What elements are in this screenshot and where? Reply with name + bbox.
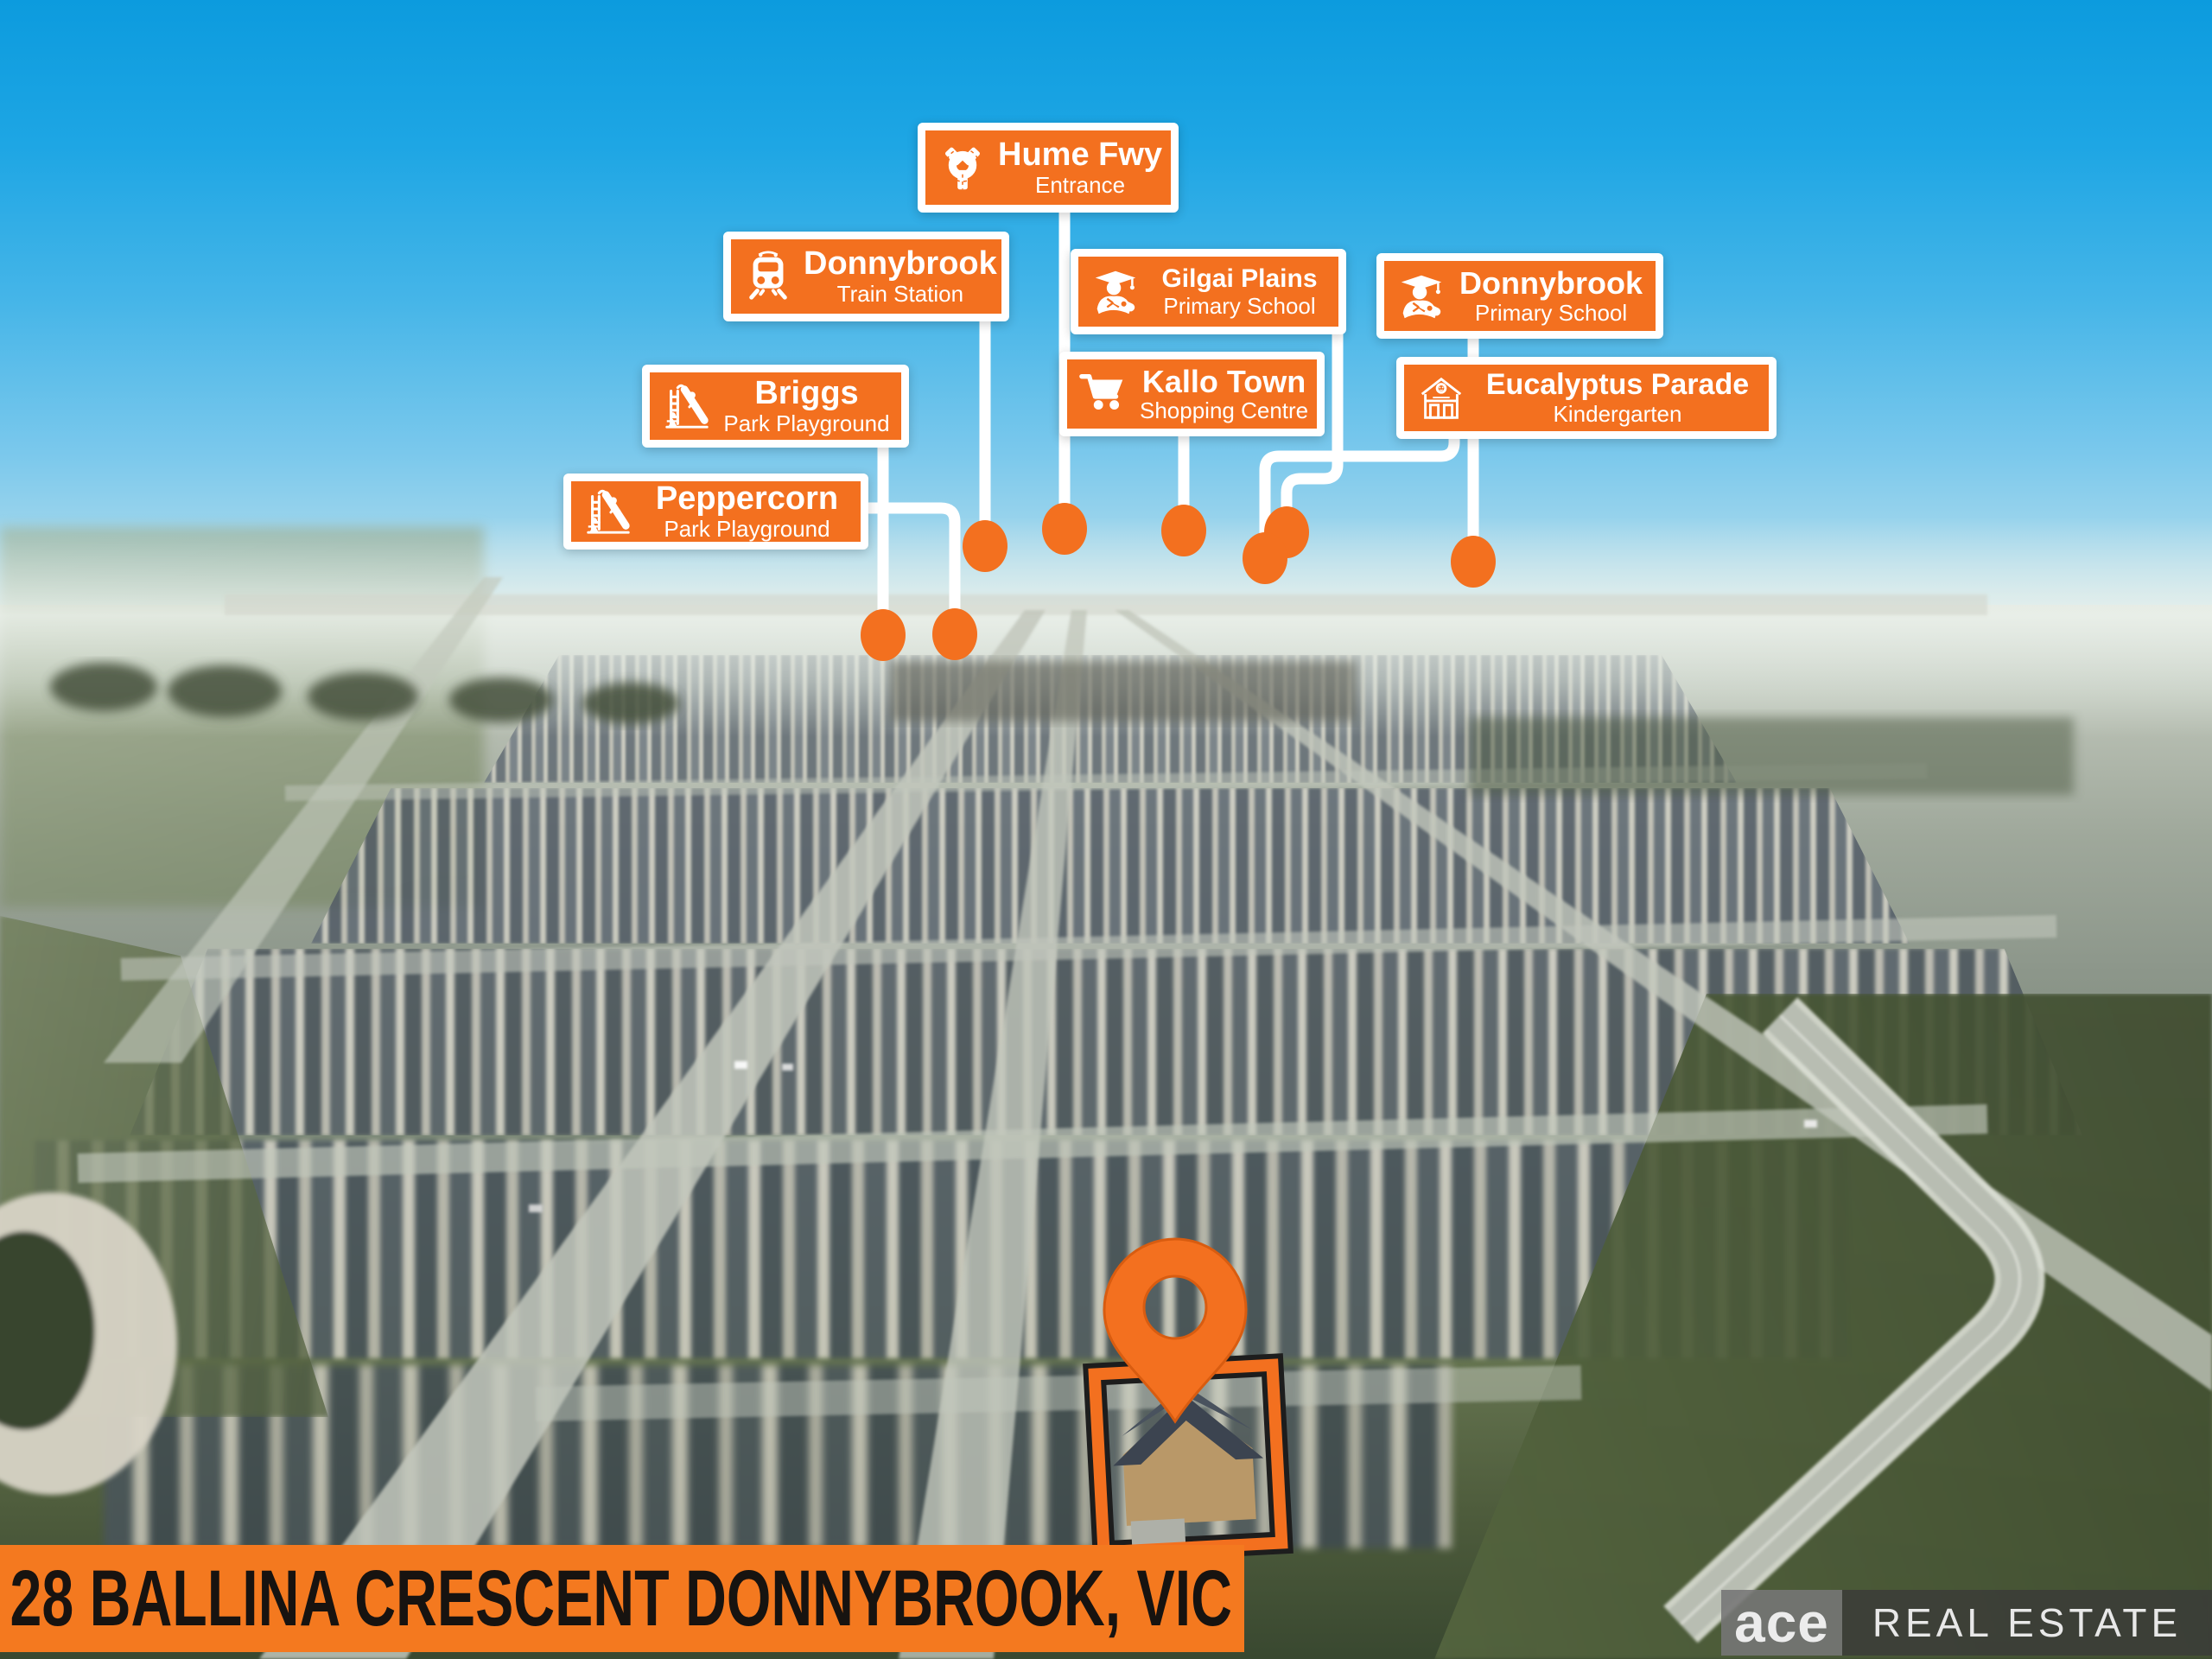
playground-slide-icon xyxy=(660,379,714,433)
brand-watermark: ace REAL ESTATE xyxy=(1721,1590,2212,1656)
callout-subtitle: Shopping Centre xyxy=(1140,399,1308,423)
dot-donnybrook-train xyxy=(963,520,1007,572)
brand-suffix-wrap: REAL ESTATE xyxy=(1842,1599,2212,1646)
brand-name: ace xyxy=(1734,1591,1829,1655)
callout-gilgai-plains: Gilgai Plains Primary School xyxy=(1071,249,1346,334)
dot-donnybrook-primary xyxy=(1451,536,1496,588)
address-banner: 28 BALLINA CRESCENT DONNYBROOK, VIC xyxy=(0,1545,1244,1652)
callout-title: Donnybrook xyxy=(804,247,997,282)
callout-title: Kallo Town xyxy=(1142,365,1306,397)
shopping-cart-icon xyxy=(1077,367,1131,421)
aerial-photo: Hume Fwy Entrance Donnybrook Train Stati… xyxy=(0,0,2212,1659)
callout-title: Donnybrook xyxy=(1459,267,1643,299)
dot-peppercorn xyxy=(932,608,977,660)
callout-eucalyptus-kindergarten: Eucalyptus Parade Kindergarten xyxy=(1396,357,1777,439)
graduate-icon xyxy=(1089,265,1142,319)
callout-donnybrook-primary: Donnybrook Primary School xyxy=(1376,253,1663,339)
train-icon xyxy=(741,250,795,303)
callout-hume-fwy: Hume Fwy Entrance xyxy=(918,123,1179,213)
callout-peppercorn-park: Peppercorn Park Playground xyxy=(563,474,868,550)
callout-title: Peppercorn xyxy=(656,482,838,517)
callout-subtitle: Park Playground xyxy=(723,412,889,435)
callout-briggs-park: Briggs Park Playground xyxy=(642,365,909,448)
callout-title: Hume Fwy xyxy=(998,138,1162,173)
brand-suffix: REAL ESTATE xyxy=(1872,1599,2182,1646)
callout-kallo-town: Kallo Town Shopping Centre xyxy=(1059,352,1325,436)
dot-briggs xyxy=(861,609,906,661)
dot-eucalyptus xyxy=(1243,532,1287,584)
school-building-icon xyxy=(1414,372,1468,425)
address-text: 28 BALLINA CRESCENT DONNYBROOK, VIC xyxy=(0,1554,1232,1644)
callout-title: Briggs xyxy=(754,377,858,411)
playground-slide-icon xyxy=(582,485,635,538)
callout-subtitle: Kindergarten xyxy=(1554,403,1682,426)
callout-subtitle: Park Playground xyxy=(664,518,829,541)
callout-subtitle: Primary School xyxy=(1163,295,1315,318)
callout-subtitle: Primary School xyxy=(1475,302,1627,325)
brand-logo: ace xyxy=(1721,1590,1842,1656)
callout-subtitle: Train Station xyxy=(837,283,963,306)
callout-donnybrook-train: Donnybrook Train Station xyxy=(723,232,1009,321)
dot-kallo-town xyxy=(1161,505,1206,556)
callout-subtitle: Entrance xyxy=(1035,174,1125,197)
callout-title: Gilgai Plains xyxy=(1161,265,1317,292)
dot-hume-fwy xyxy=(1042,503,1087,555)
callout-title: Eucalyptus Parade xyxy=(1486,370,1749,400)
graduate-icon xyxy=(1395,270,1448,323)
roundabout-icon xyxy=(936,141,989,194)
